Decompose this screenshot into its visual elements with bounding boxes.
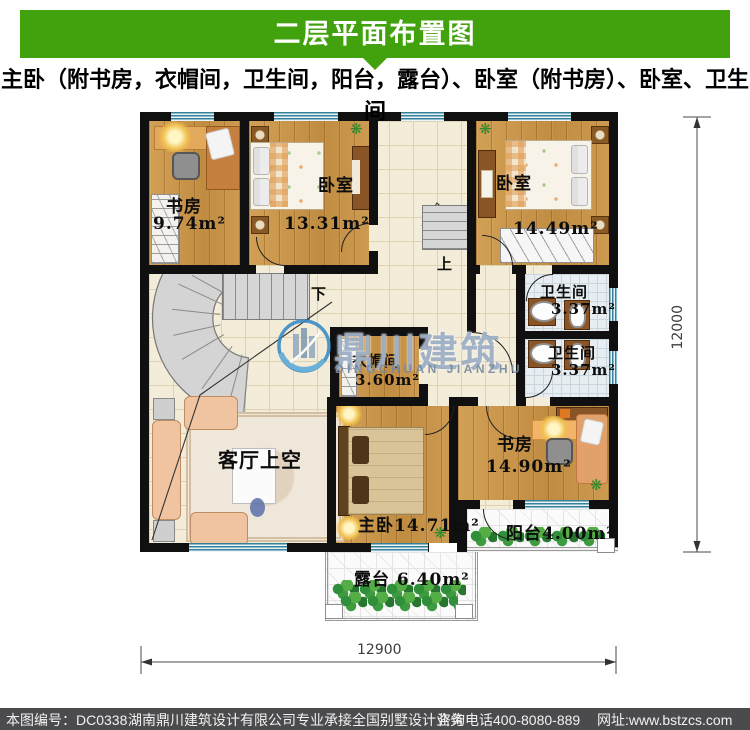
page-title: 二层平面布置图 <box>20 10 730 58</box>
pillow <box>352 476 369 504</box>
wall-balcony-b <box>513 500 524 509</box>
dimension-right: 12000 <box>670 305 686 350</box>
stair-down-label: 下 <box>311 283 327 304</box>
room-area-bath-lower: 3.37m² <box>551 361 616 379</box>
bed-blanket <box>270 143 288 207</box>
side-table <box>153 398 175 420</box>
room-label-terrace: 露台 6.40m² <box>354 565 470 590</box>
room-area-study-top: 9.74m² <box>153 214 226 234</box>
railing-post <box>455 604 473 619</box>
armchair <box>190 512 248 546</box>
office-chair <box>172 152 200 180</box>
footer-plan-number: 本图编号：DC0338 <box>6 710 127 730</box>
stair-up-label: 上 <box>437 253 453 274</box>
plant-icon: ❋ <box>590 478 603 493</box>
wall-left <box>140 112 149 552</box>
wall-cloak-right-b <box>419 384 428 406</box>
staircase-straight-run <box>222 273 310 320</box>
room-label-study-bottom: 书房 <box>497 430 533 455</box>
wall-h-mid <box>140 265 256 274</box>
nightstand <box>251 216 269 234</box>
wall-v2 <box>369 112 378 225</box>
footer-company: 湖南鼎川建筑设计有限公司专业承接全国别墅设计业务 <box>128 710 464 730</box>
nightstand <box>591 126 609 144</box>
window <box>188 543 288 552</box>
pillow <box>253 178 270 206</box>
footer-bar: 本图编号：DC0338 湖南鼎川建筑设计有限公司专业承接全国别墅设计业务 咨询电… <box>0 708 750 730</box>
decor-figure <box>250 498 265 517</box>
side-table <box>153 520 175 542</box>
room-label-balcony: 阳台4.00m² <box>506 519 615 544</box>
terrace-plants-row2 <box>340 592 458 612</box>
wall-corridor2 <box>550 397 618 406</box>
pillow <box>571 177 588 206</box>
room-label-master: 主卧14.71m² <box>358 511 480 536</box>
room-label-bedroom-left: 卧室 <box>318 171 354 196</box>
room-label-living-void: 客厅上空 <box>218 444 302 473</box>
footer-website: 网址:www.bstzcs.com <box>597 710 732 730</box>
wall-h-mid2 <box>284 265 378 274</box>
footer-phone: 咨询电话400-8080-889 <box>437 710 580 730</box>
cabinet-accent <box>560 409 570 418</box>
pillow <box>571 145 588 174</box>
sofa <box>152 420 181 520</box>
room-label-bath-lower: 卫生间 <box>548 342 596 363</box>
room-label-bedroom-right: 卧室 <box>496 169 532 194</box>
wall-v3 <box>467 112 476 274</box>
room-area-bedroom-right: 14.49m² <box>513 219 599 239</box>
watermark-logo <box>276 318 332 374</box>
room-area-bedroom-left: 13.31m² <box>284 214 370 234</box>
room-area-bath-upper: 3.37m² <box>551 300 616 318</box>
wall-corridor1 <box>516 397 526 406</box>
title-banner: 二层平面布置图 <box>20 10 730 58</box>
wall-balcony-c <box>588 500 618 509</box>
armchair <box>184 396 238 430</box>
wall-living-divider <box>327 397 336 543</box>
wall-v2-stub <box>369 251 378 274</box>
balcony-railing <box>467 547 618 552</box>
tv <box>481 170 493 198</box>
wall-h-mid5 <box>552 265 618 274</box>
window <box>370 543 429 552</box>
wall-v1 <box>240 112 249 274</box>
room-area-study-bottom: 14.90m² <box>486 457 572 477</box>
staircase-up-run <box>422 205 469 250</box>
desk-lamp-glow <box>158 122 192 152</box>
wall-bath-divider <box>516 331 618 339</box>
window <box>524 500 590 509</box>
plan-summary: 主卧（附书房，衣帽间，卫生间，阳台，露台）、卧室（附书房）、卧室、卫生间 <box>0 62 750 126</box>
room-label-bath-upper: 卫生间 <box>540 281 588 302</box>
pillow <box>253 147 270 175</box>
pillow <box>352 436 369 464</box>
dimension-bottom: 12900 <box>357 642 402 658</box>
railing-post <box>325 604 343 619</box>
watermark-text-en: DINGCHUAN JIANZHU <box>335 362 523 376</box>
wall-master-top <box>327 397 425 406</box>
